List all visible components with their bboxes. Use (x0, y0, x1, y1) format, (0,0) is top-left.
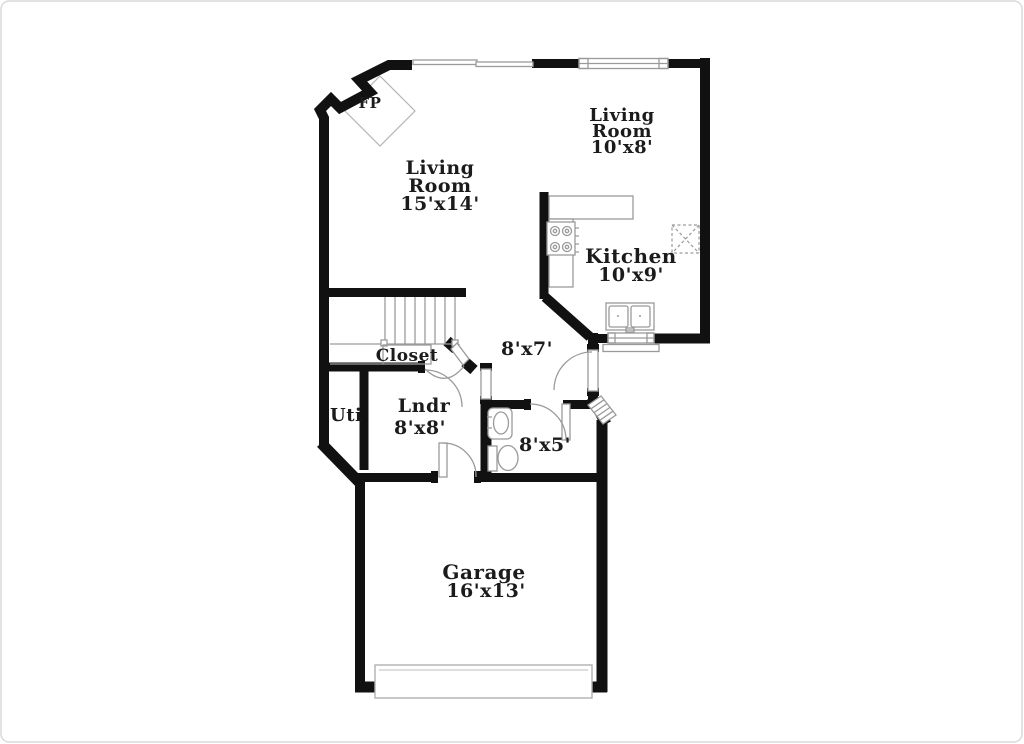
room-dims-bathroom: 8'x5' (519, 434, 571, 456)
window (413, 60, 477, 65)
kitchen-window (603, 333, 659, 352)
room-dims-kitchen: 10'x9' (598, 264, 664, 286)
room-dims-living-upper: 10'x8' (591, 137, 653, 158)
floorplan-drawing: FP Living Room 15'x14' Living Room 10'x8… (0, 0, 1024, 744)
room-label-closet: Closet (376, 346, 439, 366)
room-dims-laundry: 8'x8' (394, 417, 446, 439)
room-label-utility: Uti (330, 405, 362, 426)
window (579, 59, 668, 69)
bathroom-sink-icon (487, 408, 512, 439)
page-border (1, 1, 1022, 742)
kitchen-sink-icon (606, 303, 654, 332)
room-dims-garage: 16'x13' (446, 580, 525, 602)
room-label-laundry: Lndr (398, 395, 451, 417)
garage-door (375, 665, 592, 698)
fireplace-label: FP (359, 94, 382, 112)
window (476, 62, 533, 67)
room-dims-living-main: 15'x14' (400, 193, 479, 215)
cased-opening (481, 369, 491, 399)
stove-icon (547, 222, 579, 255)
room-dims-hall: 8'x7' (501, 338, 553, 360)
toilet-icon (488, 446, 518, 472)
floorplan-canvas: FP Living Room 15'x14' Living Room 10'x8… (0, 0, 1024, 744)
